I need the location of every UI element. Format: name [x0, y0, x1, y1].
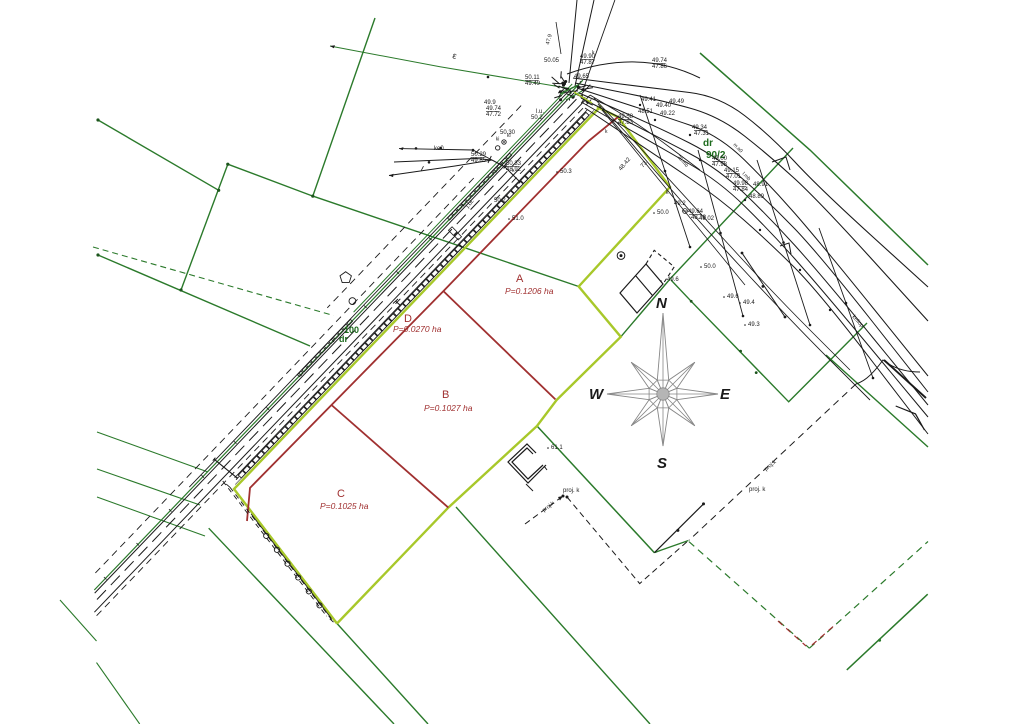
svg-text:P=0.1025 ha: P=0.1025 ha — [320, 501, 369, 511]
svg-text:47.83: 47.83 — [618, 120, 634, 126]
svg-text:49.22: 49.22 — [660, 111, 676, 117]
svg-text:50.3: 50.3 — [560, 169, 572, 175]
svg-text:dr: dr — [703, 138, 713, 149]
svg-text:A: A — [516, 273, 524, 285]
svg-text:C: C — [337, 488, 345, 500]
svg-text:proj. k: proj. k — [563, 488, 580, 494]
svg-text:49.49: 49.49 — [669, 99, 685, 105]
svg-text:l.u.: l.u. — [536, 109, 544, 115]
svg-text:50.30: 50.30 — [500, 130, 516, 136]
svg-text:50.0: 50.0 — [657, 210, 669, 216]
svg-text:48.91: 48.91 — [753, 182, 769, 188]
svg-text:50.2: 50.2 — [531, 115, 543, 121]
svg-text:dr: dr — [339, 334, 348, 344]
svg-text:47.01: 47.01 — [726, 174, 742, 180]
svg-text:N: N — [656, 295, 668, 312]
svg-text:47.72: 47.72 — [486, 112, 502, 118]
svg-text:49.2: 49.2 — [674, 201, 686, 207]
svg-text:P=0.1027 ha: P=0.1027 ha — [424, 403, 473, 413]
svg-text:49.6: 49.6 — [727, 294, 739, 300]
svg-text:48.51: 48.51 — [638, 109, 654, 115]
svg-text:49.02: 49.02 — [699, 216, 715, 222]
svg-text:W: W — [589, 386, 605, 403]
svg-text:50.2: 50.2 — [494, 198, 506, 204]
svg-text:S: S — [657, 455, 667, 472]
svg-text:E: E — [720, 386, 731, 403]
svg-text:49.85: 49.85 — [471, 158, 487, 164]
svg-text:49.41: 49.41 — [641, 97, 657, 103]
svg-text:49.65: 49.65 — [574, 74, 590, 80]
svg-text:ke0: ke0 — [434, 146, 444, 152]
svg-text:49.3: 49.3 — [748, 322, 760, 328]
svg-text:47.87: 47.87 — [580, 60, 596, 66]
svg-text:47.31: 47.31 — [694, 131, 710, 137]
svg-text:51.0: 51.0 — [512, 216, 524, 222]
svg-text:50.05: 50.05 — [544, 58, 560, 64]
svg-text:B: B — [442, 389, 449, 401]
svg-text:ki: ki — [496, 137, 500, 143]
svg-text:49.4: 49.4 — [743, 300, 755, 306]
svg-text:proj. k: proj. k — [749, 487, 766, 493]
svg-text:47.86: 47.86 — [652, 64, 668, 70]
svg-text:49.49: 49.49 — [525, 81, 541, 87]
svg-text:47.84: 47.84 — [733, 187, 749, 193]
svg-text:50.0: 50.0 — [704, 264, 716, 270]
svg-text:61.1: 61.1 — [551, 445, 563, 451]
svg-text:P=0.1206 ha: P=0.1206 ha — [505, 286, 554, 296]
svg-text:48.89: 48.89 — [749, 194, 765, 200]
svg-text:49.6: 49.6 — [667, 277, 679, 283]
svg-text:P=0.0270 ha: P=0.0270 ha — [393, 324, 442, 334]
